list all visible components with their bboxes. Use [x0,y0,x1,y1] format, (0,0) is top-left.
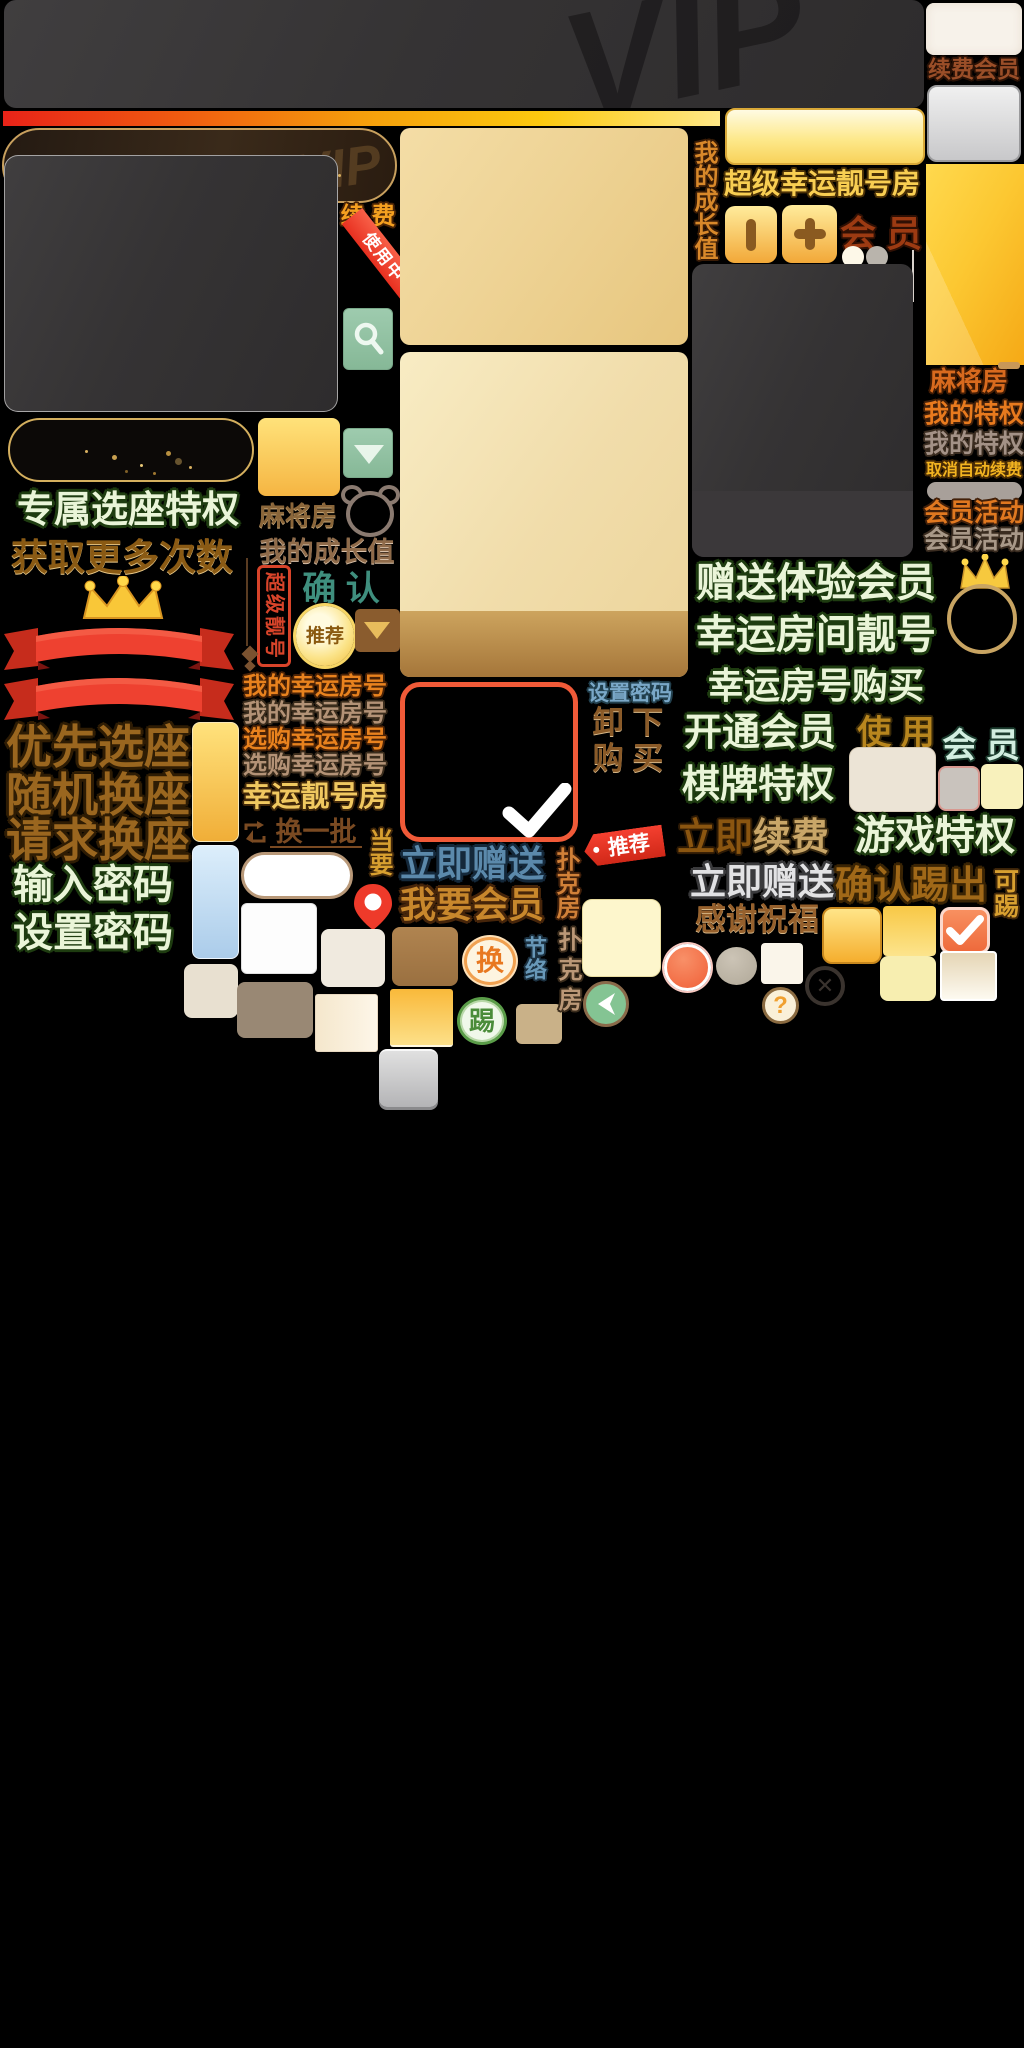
check-icon [501,783,573,839]
confirm-label: 确 认 [290,568,392,610]
gold-bordered-square[interactable] [822,907,882,964]
beige-square-button[interactable] [321,929,385,987]
growth-value-vertical: 我的成长值 [688,126,718,274]
close-icon: ✕ [809,970,841,1002]
minus-button[interactable] [725,206,777,263]
super-number-tag-label: 超级靓号 [262,570,286,662]
renew-member-label: 续费会员 [924,56,1024,82]
priority-seat-label: 优先选座 [0,720,196,774]
mahjong-room-right-label: 麻将房 [926,366,1012,396]
wide-gold-button[interactable] [725,108,925,165]
mid-card-panel [692,264,913,557]
super-lucky-room-label: 超级幸运靓号房 [716,165,928,203]
recommend-badge-label: 推荐 [296,606,354,666]
plus-icon-h [794,229,826,239]
sprite-atlas-canvas: VIP 续费会员 VIP 续 费 使用中 我的成长值 超级幸运靓号房 会 员 [0,0,1024,2048]
game-privilege-label: 游戏特权 [846,813,1024,859]
recommend-badge[interactable]: 推荐 [296,606,354,666]
request-seat-label: 请求换座 [0,816,196,864]
member-activity-orange: 会员活动 [924,499,1024,527]
beige-square-left[interactable] [184,964,238,1018]
ribbon-banner-2 [2,670,236,720]
gold-square-button[interactable] [258,418,340,496]
white-square-button[interactable] [241,903,317,974]
kickable-vertical-label: 可踢 [986,864,1022,922]
ring-frame [947,584,1017,654]
back-arrow-button[interactable] [583,981,629,1027]
random-seat-label: 随机换座 [0,770,196,820]
close-circle-button[interactable]: ✕ [805,966,845,1006]
my-lucky-room-tan: 我的幸运房号 [238,700,392,727]
decor-line [246,558,248,646]
lucky-nice-room-label: 幸运靓号房 [240,780,390,814]
beige-rect-button[interactable] [849,747,936,812]
lucky-number-buy-label: 幸运房号购买 [686,666,946,706]
plus-button[interactable] [782,205,837,263]
search-icon [351,320,387,360]
gray-circle-button[interactable] [716,947,757,985]
exclusive-seat-label: 专属选座特权 [0,488,256,530]
gold-slider-rect[interactable] [192,722,239,842]
poker-room-vertical-tan: 扑克房 [552,924,582,1020]
confirm-kick-label: 确认踢出 [830,864,992,908]
thanks-blessing-label: 感谢祝福 [688,901,826,937]
gray-pill[interactable] [927,482,1022,500]
red-frame-panel [400,682,578,842]
give-now-gray-label: 立即赠送 [688,860,836,904]
dash-mark [998,362,1020,369]
gold-gradient-square[interactable] [390,989,453,1047]
pale-yellow-square[interactable] [981,764,1023,809]
gold-plain-square[interactable] [883,906,936,956]
gold-side-panel [926,164,1024,365]
white-pill-button[interactable] [241,852,353,899]
search-button[interactable] [343,308,393,370]
top-banner-panel: VIP [4,0,924,108]
face-frame-icon [344,487,392,535]
set-password-left-label: 设置密码 [0,909,186,957]
chevron-down-icon [354,445,384,464]
vip-watermark: VIP [549,0,821,108]
brown-square-button[interactable] [392,927,458,986]
swap-coin-button[interactable]: 换 [464,937,516,985]
mid-card-footer [692,491,913,557]
jie-luo-vertical: 节络 [520,926,548,990]
buy-label: 购 买 [580,740,676,776]
chevron-down-gold-icon [364,622,390,639]
cancel-auto-renew-label: 取消自动续费 [924,460,1024,482]
dropdown-button-brown[interactable] [355,609,400,652]
black-progress-pill [8,418,254,482]
question-coin-button[interactable]: ? [762,987,799,1024]
taupe-square-button[interactable] [237,982,313,1038]
my-privilege-gray: 我的特权 [924,429,1024,459]
renew-now-a: 立即 [677,819,753,857]
pink-gray-square[interactable] [938,766,980,811]
gold-card-2-footer [400,611,688,677]
chess-privilege-label: 棋牌特权 [670,763,846,807]
mahjong-room-left-label: 麻将房 [256,500,340,532]
gift-trial-member-label: 赠送体验会员 [686,560,946,606]
cream-gradient-square[interactable] [315,994,378,1052]
orange-check-square[interactable] [940,907,990,954]
kick-coin-button[interactable]: 踢 [457,997,507,1045]
blue-slider-rect[interactable] [192,845,239,959]
silver-button-blank[interactable] [927,85,1021,162]
decor-diamond-2 [244,660,255,671]
member-activity-gray: 会员活动 [924,526,1024,554]
super-number-tag[interactable]: 超级靓号 [257,565,291,667]
want-member-label: 我要会员 [386,884,558,926]
open-member-label: 开通会员 [674,711,846,755]
ribbon-banner-1 [2,620,236,670]
question-mark-label: ? [765,990,796,1021]
dropdown-button-green[interactable] [343,428,393,478]
my-lucky-room-orange: 我的幸运房号 [238,673,392,700]
pill-sparkles [85,450,88,453]
growth-value-label: 我的成长值 [254,536,400,568]
swap-coin-label: 换 [467,940,513,982]
buy-lucky-room-orange: 选购幸运房号 [238,726,392,753]
pale-yellow-square-2[interactable] [880,956,936,1001]
my-privilege-orange: 我的特权 [924,399,1024,429]
poker-room-vertical-orange: 扑克房 [550,840,580,926]
check-small-icon [945,913,985,947]
pale-yellow-panel[interactable] [582,899,661,977]
crown-icon [76,576,170,624]
beige-gradient-square[interactable] [940,951,997,1001]
member-cyan-label: 会 员 [936,726,1024,766]
get-more-times-label: 获取更多次数 [0,536,244,578]
kick-coin-label: 踢 [460,1000,504,1042]
gradient-progress-bar [3,111,720,126]
white-button-blank[interactable] [926,3,1022,55]
minus-icon [746,219,756,251]
gold-card-2 [400,352,688,677]
arrow-left-icon [589,987,623,1021]
lucky-room-number-label: 幸运房间靓号 [686,612,946,658]
left-card-panel [4,155,338,412]
give-now-blue-label: 立即赠送 [386,844,558,884]
recommend-tag-label: 推荐 [592,825,666,866]
change-batch-button[interactable]: 换一批 [270,818,362,848]
renew-now-label: 立即续费 [672,816,834,860]
enter-password-label: 输入密码 [0,861,186,909]
buy-lucky-room-tan: 选购幸运房号 [238,752,392,779]
set-password-blue-label: 设置密码 [582,681,678,705]
salmon-circle-button[interactable] [664,944,711,991]
unload-label: 卸 下 [580,704,676,740]
cream-square-small[interactable] [761,943,803,984]
gold-card-1 [400,128,688,345]
recommend-tag[interactable]: 推荐 [582,825,666,868]
silver-square-button[interactable] [379,1049,438,1107]
refresh-icon[interactable] [242,820,268,846]
renew-now-b: 续费 [753,819,829,857]
